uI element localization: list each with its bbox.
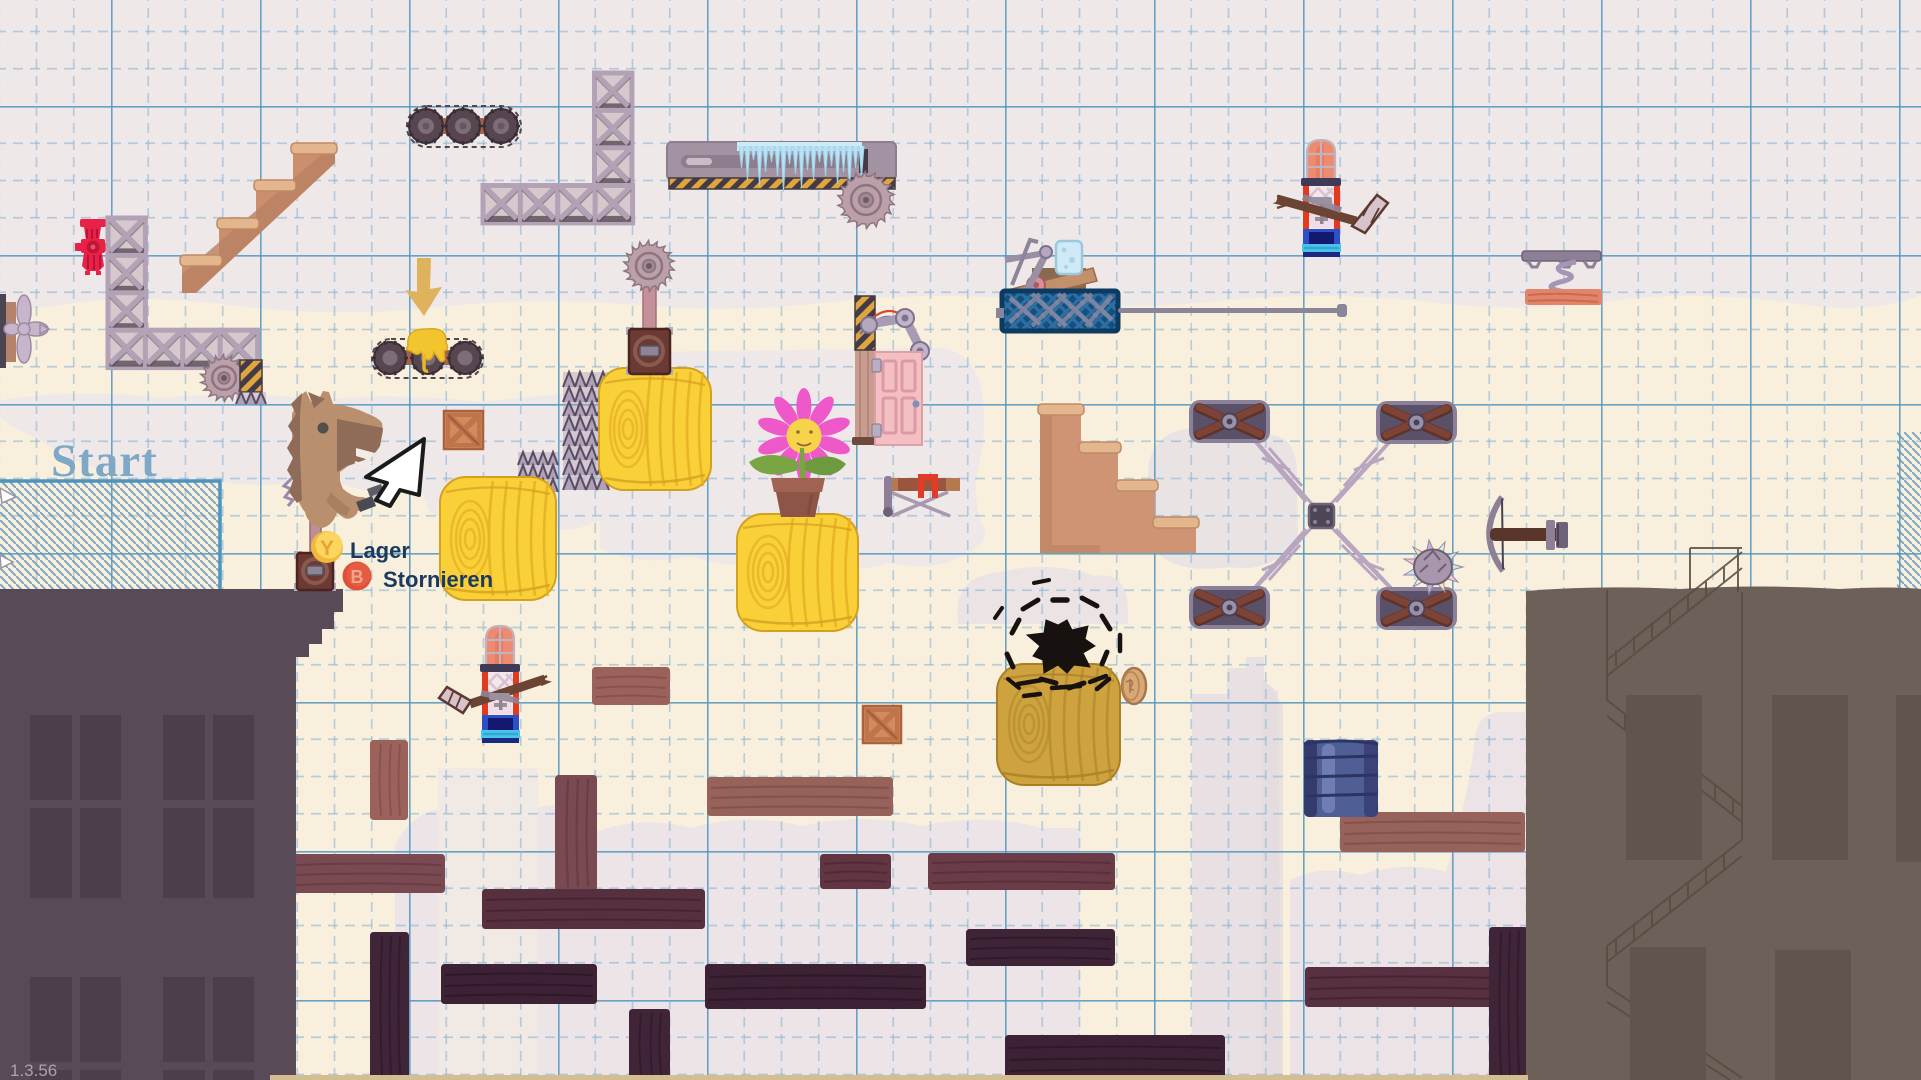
svg-text:Lager: Lager (350, 538, 410, 563)
svg-text:1.3.56: 1.3.56 (10, 1061, 57, 1080)
svg-text:B: B (351, 567, 364, 587)
svg-text:Start: Start (51, 435, 158, 487)
svg-text:Y: Y (320, 537, 334, 560)
svg-text:Stornieren: Stornieren (383, 567, 493, 592)
